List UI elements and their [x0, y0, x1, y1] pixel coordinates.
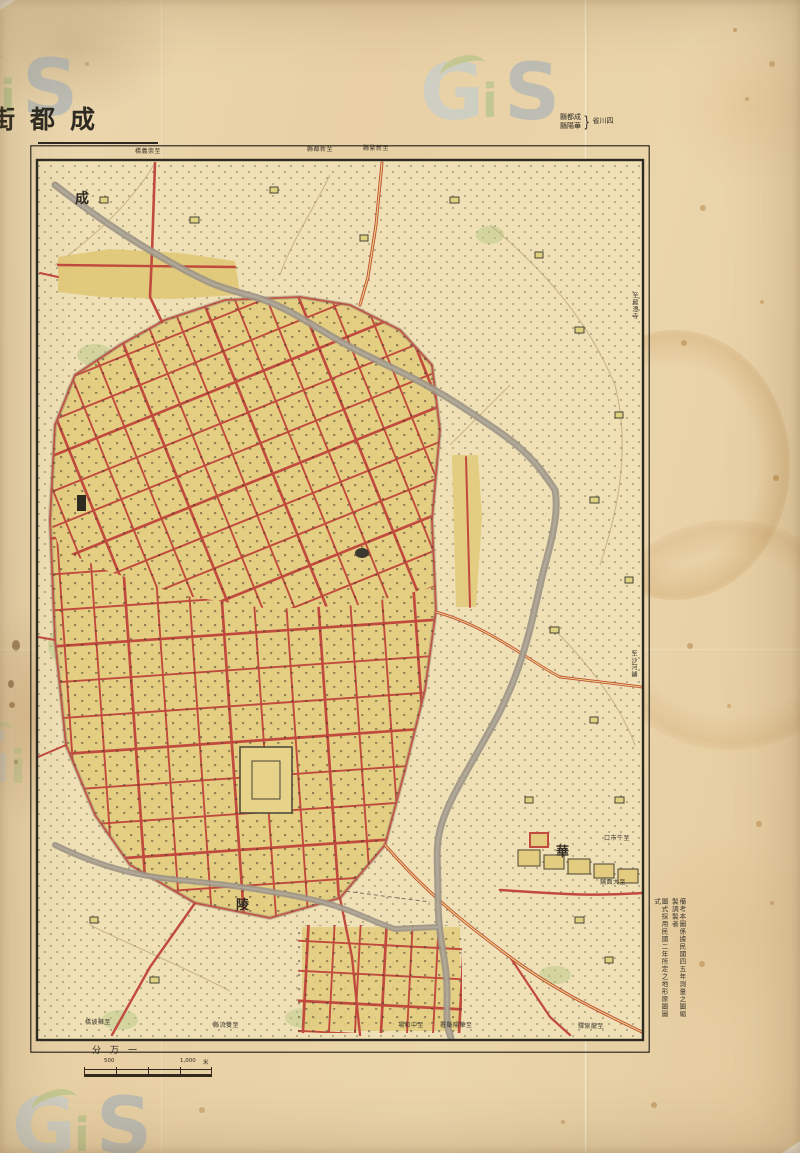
edge-vignette	[0, 0, 800, 1153]
map-sheet: GiS GiS GiS GiS GiS GiS GiS GiS GiS 街都成 …	[0, 0, 800, 1153]
